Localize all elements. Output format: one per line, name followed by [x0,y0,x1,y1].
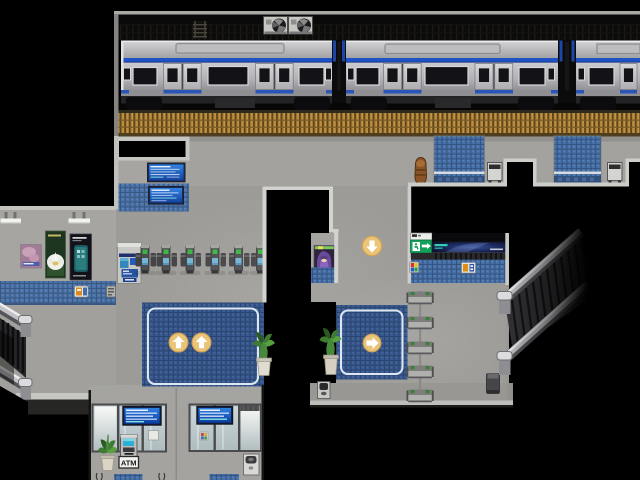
svg-text:ATM: ATM [121,459,137,468]
